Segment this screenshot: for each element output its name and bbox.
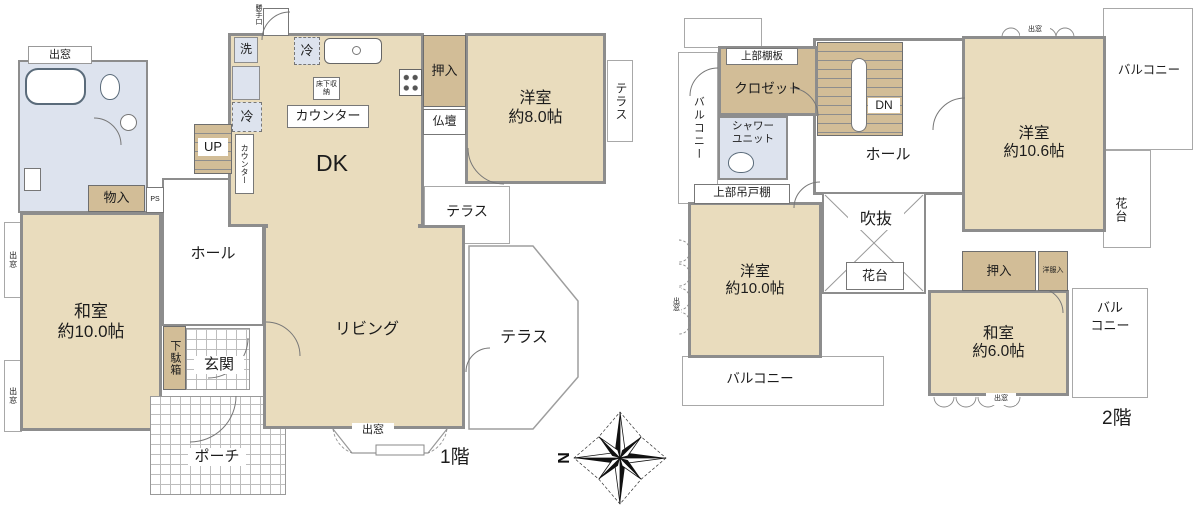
back-door-label: 勝手口 bbox=[251, 4, 262, 44]
stair-rail bbox=[851, 58, 867, 132]
stairs-down-label: DN bbox=[868, 98, 900, 113]
floor2-caption: 2階 bbox=[1102, 408, 1132, 430]
balcony-northeast bbox=[1103, 8, 1193, 150]
terrace-mid-label: テラス bbox=[438, 202, 496, 220]
floorplan-canvas: 出窓 出窓 出窓 物入 PS 和室 約10.0帖 ホール 下駄箱 玄関 ポーチ … bbox=[0, 0, 1200, 505]
room-size: 約10.0帖 bbox=[725, 280, 784, 297]
hall-label: ホール bbox=[838, 146, 938, 164]
compass-north-label: N bbox=[556, 452, 573, 464]
upper-shelf-label: 上部棚板 bbox=[726, 48, 798, 65]
balcony-label-line1: バル bbox=[1074, 301, 1146, 316]
stove-icon bbox=[399, 69, 422, 96]
bay-window-label: 出窓 bbox=[670, 288, 681, 320]
shoe-cabinet: 下駄箱 bbox=[163, 326, 186, 390]
room-size: 約6.0帖 bbox=[972, 343, 1025, 361]
bay-window-label: 出窓 bbox=[28, 46, 92, 64]
counter-box: カウンター bbox=[287, 105, 369, 128]
washbasin-icon bbox=[120, 114, 137, 131]
compass-icon: N bbox=[556, 412, 666, 504]
room-joint bbox=[268, 218, 418, 234]
bay-window-label: 出窓 bbox=[7, 237, 19, 283]
vanity-unit bbox=[232, 66, 260, 100]
buddhist-altar: 仏壇 bbox=[423, 109, 466, 135]
balcony-label: バルコニー bbox=[692, 96, 705, 161]
storage-monoiri: 物入 bbox=[88, 185, 145, 212]
flower-stand-box: 花台 bbox=[846, 262, 904, 290]
balcony-top-left bbox=[684, 18, 762, 48]
room-name: 洋室 bbox=[1018, 125, 1049, 143]
balcony-label-line2: コニー bbox=[1074, 319, 1146, 334]
closet-oshiire-2f: 押入 bbox=[962, 251, 1036, 291]
room-name: 和室 bbox=[983, 325, 1014, 343]
closet-oshiire-1f: 押入 bbox=[423, 35, 466, 107]
room-size: 約8.0帖 bbox=[508, 109, 562, 127]
porch-label: ポーチ bbox=[188, 448, 246, 466]
underfloor-storage: 床下収納 bbox=[313, 77, 340, 100]
room-name: 洋室 bbox=[519, 90, 551, 108]
terrace-east: テラス bbox=[607, 60, 633, 142]
room-name: 和室 bbox=[74, 302, 108, 322]
clothes-closet: 洋服入 bbox=[1038, 251, 1068, 291]
balcony-west: バルコニー bbox=[678, 52, 718, 204]
bay-window-label: 出窓 bbox=[1020, 24, 1050, 36]
terrace-big-label: テラス bbox=[494, 328, 554, 348]
flower-stand-label: 花台 bbox=[1112, 184, 1128, 236]
bathtub bbox=[25, 68, 86, 105]
hall-label: ホール bbox=[170, 244, 256, 264]
pipe-space: PS bbox=[146, 187, 164, 213]
fridge-1: 冷 bbox=[232, 102, 262, 132]
room-name: 洋室 bbox=[740, 263, 770, 280]
hanging-cupboard-label: 上部吊戸棚 bbox=[694, 184, 790, 204]
terrace-label: テラス bbox=[613, 82, 627, 121]
stairs-up-label: UP bbox=[198, 138, 228, 156]
shower-label-line2: ユニット bbox=[720, 133, 786, 146]
counter-vertical: カウンター bbox=[235, 134, 254, 194]
room-size: 約10.6帖 bbox=[1003, 143, 1064, 161]
room-yoshitsu-106: 洋室 約10.6帖 bbox=[962, 36, 1106, 232]
bay-window-label: 出窓 bbox=[7, 373, 19, 419]
room-washitsu-6: 和室 約6.0帖 bbox=[928, 290, 1069, 396]
floor1-caption: 1階 bbox=[440, 447, 470, 469]
genkan-label: 玄関 bbox=[194, 356, 244, 374]
void-label: 吹抜 bbox=[848, 210, 904, 230]
shower-label-line1: シャワー bbox=[720, 120, 786, 133]
living-label: リビング bbox=[322, 320, 412, 340]
toilet-icon-2f bbox=[728, 152, 754, 173]
room-yoshitsu-10: 洋室 約10.0帖 bbox=[688, 202, 822, 358]
faucet-icon bbox=[352, 46, 361, 55]
bay-window-label: 出窓 bbox=[352, 423, 394, 437]
room-washitsu-10: 和室 約10.0帖 bbox=[20, 212, 162, 431]
balcony-label: バルコニー bbox=[1106, 62, 1192, 78]
room-size: 約10.0帖 bbox=[57, 322, 124, 342]
room-yoshitsu-8: 洋室 約8.0帖 bbox=[465, 33, 606, 184]
closet-label: クロゼット bbox=[720, 80, 816, 98]
toilet-icon bbox=[100, 74, 120, 100]
washer-icon bbox=[24, 168, 41, 191]
dk-label: DK bbox=[292, 150, 372, 178]
fridge-2: 冷 bbox=[294, 37, 320, 65]
balcony-label: バルコニー bbox=[700, 370, 820, 388]
bay-window-label: 出窓 bbox=[986, 393, 1016, 405]
back-door bbox=[263, 8, 289, 36]
